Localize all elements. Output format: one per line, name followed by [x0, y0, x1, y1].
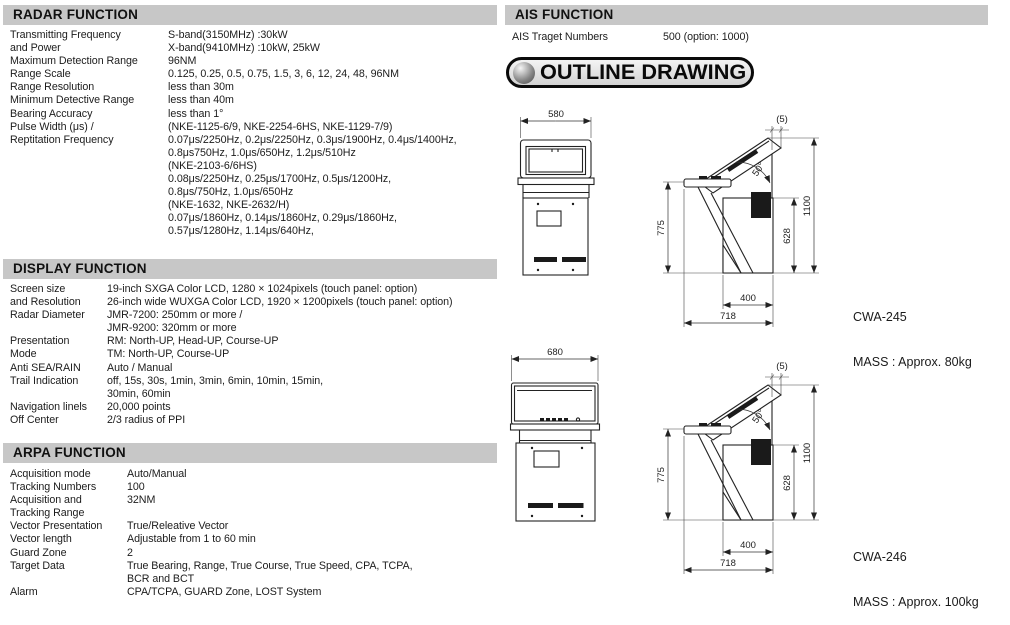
keyboard-shelf: [518, 178, 594, 185]
dim-top-offset: (5): [776, 361, 788, 372]
console-body: [516, 443, 595, 521]
model-label: CWA-245 MASS : Approx. 80kg: [853, 280, 972, 385]
model-mass: MASS : Approx. 100kg: [853, 595, 979, 610]
model-mass: MASS : Approx. 80kg: [853, 355, 972, 370]
spec-label: Target Data: [10, 560, 127, 586]
spec-row: Bearing Accuracy less than 1°: [10, 108, 457, 121]
front-view-dimensions: 680: [512, 347, 599, 359]
radar-spec-table: Transmitting Frequency and Power S-band(…: [10, 29, 457, 239]
spec-label: Acquisition and Tracking Range: [10, 494, 127, 520]
spec-label: Guard Zone: [10, 547, 127, 560]
dim-front-width: 680: [547, 347, 563, 358]
spec-value: 32NM: [127, 494, 155, 520]
outline-drawing-title: OUTLINE DRAWING: [540, 60, 746, 85]
screw: [572, 269, 574, 271]
spec-label: AIS Traget Numbers: [512, 31, 663, 44]
spec-value: JMR-7200: 250mm or more / JMR-9200: 320m…: [107, 309, 242, 335]
connector-block: [751, 439, 771, 465]
section-header-ais: AIS FUNCTION: [505, 5, 988, 25]
spec-value: 96NM: [168, 55, 196, 68]
spec-label: Anti SEA/RAIN: [10, 362, 107, 375]
spec-row: Vector Presentation True/Releative Vecto…: [10, 520, 413, 533]
spec-row: Range Scale 0.125, 0.25, 0.5, 0.75, 1.5,…: [10, 68, 457, 81]
display-spec-table: Screen size and Resolution 19-inch SXGA …: [10, 283, 453, 427]
screen: [529, 149, 583, 172]
spec-label: Minimum Detective Range: [10, 94, 168, 107]
monitor-front: [512, 383, 599, 424]
vent-slot: [562, 257, 586, 262]
dim-overall-depth: 718: [720, 311, 736, 322]
screw: [581, 447, 583, 449]
spec-row: Presentation Mode RM: North-UP, Head-UP,…: [10, 335, 453, 361]
spec-row: Minimum Detective Range less than 40m: [10, 94, 457, 107]
spec-row: Acquisition and Tracking Range 32NM: [10, 494, 413, 520]
nameplate: [537, 211, 561, 226]
outline-drawing-banner: OUTLINE DRAWING: [506, 57, 754, 88]
dim-rear-height: 628: [782, 475, 793, 491]
spec-row: Vector length Adjustable from 1 to 60 mi…: [10, 533, 413, 546]
spec-value: 19-inch SXGA Color LCD, 1280 × 1024pixel…: [107, 283, 453, 309]
spec-label: Acquisition mode: [10, 468, 127, 481]
dim-console-height: 775: [656, 220, 667, 236]
nameplate: [534, 451, 559, 467]
vent-slot: [558, 503, 584, 508]
front-view-dimensions: 580: [521, 109, 592, 121]
spec-label: Screen size and Resolution: [10, 283, 107, 309]
spec-value: 2: [127, 547, 133, 560]
spec-value: less than 1°: [168, 108, 223, 121]
spec-row: Guard Zone 2: [10, 547, 413, 560]
dim-top-offset: (5): [776, 114, 788, 125]
dim-overall-depth: 718: [720, 558, 736, 569]
spec-row: Acquisition mode Auto/Manual: [10, 468, 413, 481]
section-header-arpa: ARPA FUNCTION: [3, 443, 497, 463]
section-header-radar: RADAR FUNCTION: [3, 5, 497, 25]
spec-value: S-band(3150MHz) :30kW X-band(9410MHz) :1…: [168, 29, 320, 55]
sphere-icon: [513, 62, 535, 84]
spec-row: Screen size and Resolution 19-inch SXGA …: [10, 283, 453, 309]
spec-label: Trail Indication: [10, 375, 107, 401]
connector-block: [751, 192, 771, 218]
spec-row: Target Data True Bearing, Range, True Co…: [10, 560, 413, 586]
spec-row: Pulse Width (μs) / Reptitation Frequency…: [10, 121, 457, 239]
spec-value: 2/3 radius of PPI: [107, 414, 185, 427]
spec-label: Range Resolution: [10, 81, 168, 94]
front-view-extensions: [521, 117, 592, 138]
spec-label: Presentation Mode: [10, 335, 107, 361]
spec-value: less than 40m: [168, 94, 234, 107]
vent-slot: [528, 503, 553, 508]
spec-value: CPA/TCPA, GUARD Zone, LOST System: [127, 586, 321, 599]
section-header-display: DISPLAY FUNCTION: [3, 259, 497, 279]
spec-value: RM: North-UP, Head-UP, Course-UP TM: Nor…: [107, 335, 278, 361]
spec-value: 0.125, 0.25, 0.5, 0.75, 1.5, 3, 6, 12, 2…: [168, 68, 399, 81]
spec-label: Vector length: [10, 533, 127, 546]
spec-label: Bearing Accuracy: [10, 108, 168, 121]
spec-value: True Bearing, Range, True Course, True S…: [127, 560, 413, 586]
model-label: CWA-246 MASS : Approx. 100kg: [853, 520, 979, 625]
dim-rear-height: 628: [782, 228, 793, 244]
cwa-245-drawing: 580: [505, 100, 845, 340]
ais-spec-table: AIS Traget Numbers 500 (option: 1000): [512, 31, 749, 44]
spec-value: (NKE-1125-6/9, NKE-2254-6HS, NKE-1129-7/…: [168, 121, 457, 239]
control-knob: [576, 418, 579, 421]
dim-overall-height: 1100: [802, 196, 813, 216]
spec-row: Trail Indication off, 15s, 30s, 1min, 3m…: [10, 375, 453, 401]
front-view: [511, 383, 600, 521]
arpa-spec-table: Acquisition mode Auto/Manual Tracking Nu…: [10, 468, 413, 599]
spec-value: off, 15s, 30s, 1min, 3min, 6min, 10min, …: [107, 375, 323, 401]
spec-row: AIS Traget Numbers 500 (option: 1000): [512, 31, 749, 44]
screw: [537, 203, 539, 205]
screw: [572, 203, 574, 205]
control-button: [558, 418, 562, 421]
console-body: [523, 198, 588, 275]
side-view: [684, 385, 781, 520]
spec-row: Off Center 2/3 radius of PPI: [10, 414, 453, 427]
spec-label: Off Center: [10, 414, 107, 427]
side-view-dimensions: 775 1100 628 400 718 (5) 50°: [656, 361, 819, 574]
spec-row: Transmitting Frequency and Power S-band(…: [10, 29, 457, 55]
screw: [531, 447, 533, 449]
spec-label: Pulse Width (μs) / Reptitation Frequency: [10, 121, 168, 239]
spec-row: Tracking Numbers 100: [10, 481, 413, 494]
dim-overall-height: 1100: [802, 443, 813, 463]
spec-row: Range Resolution less than 30m: [10, 81, 457, 94]
control-button: [564, 418, 568, 421]
spec-label: Navigation linels: [10, 401, 107, 414]
spec-row: Alarm CPA/TCPA, GUARD Zone, LOST System: [10, 586, 413, 599]
screw: [537, 269, 539, 271]
spec-value: Auto / Manual: [107, 362, 172, 375]
spec-value: Auto/Manual: [127, 468, 186, 481]
spec-label: Alarm: [10, 586, 127, 599]
model-name: CWA-245: [853, 310, 972, 325]
front-view: [518, 140, 594, 275]
spec-label: Maximum Detection Range: [10, 55, 168, 68]
control-button: [552, 418, 556, 421]
spec-row: Maximum Detection Range 96NM: [10, 55, 457, 68]
spec-label: Transmitting Frequency and Power: [10, 29, 168, 55]
spec-label: Tracking Numbers: [10, 481, 127, 494]
control-button: [546, 418, 550, 421]
side-view: [684, 138, 781, 273]
spec-value: True/Releative Vector: [127, 520, 228, 533]
spec-row: Radar Diameter JMR-7200: 250mm or more /…: [10, 309, 453, 335]
dim-base-depth: 400: [740, 540, 756, 551]
keyboard-shelf: [511, 424, 600, 430]
control-button: [540, 418, 544, 421]
screw: [581, 515, 583, 517]
spec-label: Radar Diameter: [10, 309, 107, 335]
spec-label: Vector Presentation: [10, 520, 127, 533]
shelf-side: [684, 179, 731, 187]
spec-label: Range Scale: [10, 68, 168, 81]
cwa-246-drawing: 680: [505, 342, 845, 606]
screw: [531, 515, 533, 517]
spec-value: 500 (option: 1000): [663, 31, 749, 44]
spec-row: Navigation linels 20,000 points: [10, 401, 453, 414]
spec-value: Adjustable from 1 to 60 min: [127, 533, 256, 546]
vent-slot: [534, 257, 557, 262]
spec-value: less than 30m: [168, 81, 234, 94]
shelf-side: [684, 426, 731, 434]
dim-console-height: 775: [656, 467, 667, 483]
model-name: CWA-246: [853, 550, 979, 565]
spec-value: 100: [127, 481, 145, 494]
dim-base-depth: 400: [740, 293, 756, 304]
side-view-dimensions: 775 1100 628 400 718 (5) 50°: [656, 114, 819, 327]
dim-front-width: 580: [548, 109, 564, 120]
spec-value: 20,000 points: [107, 401, 171, 414]
spec-row: Anti SEA/RAIN Auto / Manual: [10, 362, 453, 375]
